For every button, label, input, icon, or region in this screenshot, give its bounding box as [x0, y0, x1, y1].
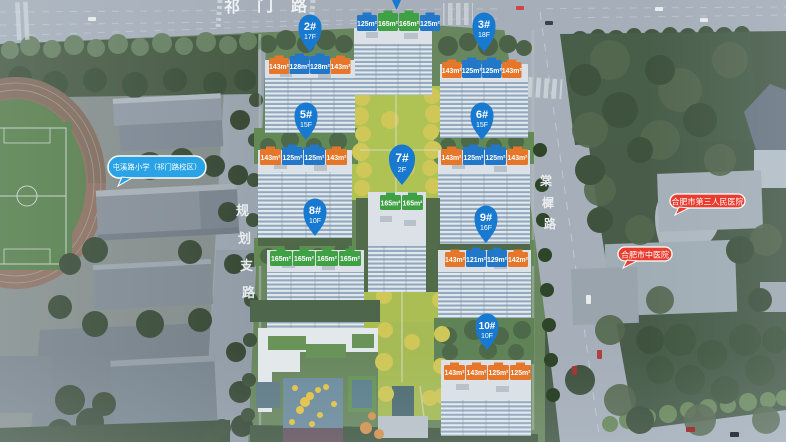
svg-text:2F: 2F: [398, 165, 407, 174]
svg-text:125m²: 125m²: [420, 21, 441, 28]
svg-text:祁: 祁: [224, 0, 240, 16]
svg-text:15F: 15F: [476, 122, 488, 129]
svg-text:165m²: 165m²: [271, 256, 292, 263]
svg-text:9#: 9#: [480, 212, 492, 224]
svg-text:165m²: 165m²: [317, 256, 338, 263]
svg-text:143m²: 143m²: [261, 155, 282, 162]
svg-text:合肥市第三人民医院: 合肥市第三人民医院: [672, 197, 744, 207]
svg-text:125m²: 125m²: [305, 155, 326, 162]
svg-text:143m²: 143m²: [442, 155, 463, 162]
svg-text:门: 门: [257, 0, 273, 15]
svg-text:17F: 17F: [304, 34, 316, 41]
svg-text:路: 路: [242, 285, 256, 300]
svg-text:125m²: 125m²: [511, 370, 532, 377]
svg-text:棠: 棠: [539, 173, 553, 188]
svg-text:8#: 8#: [309, 205, 321, 217]
svg-text:125m²: 125m²: [486, 155, 507, 162]
svg-text:15F: 15F: [300, 122, 312, 129]
svg-text:143m²: 143m²: [508, 155, 529, 162]
svg-text:16F: 16F: [480, 225, 492, 232]
svg-text:10F: 10F: [481, 333, 493, 340]
svg-text:121m²: 121m²: [466, 257, 487, 264]
svg-text:6#: 6#: [476, 109, 488, 121]
svg-text:165m²: 165m²: [378, 21, 399, 28]
svg-text:128m²: 128m²: [290, 64, 311, 71]
svg-text:143m²: 143m²: [327, 155, 348, 162]
svg-text:10F: 10F: [309, 218, 321, 225]
svg-text:143m²: 143m²: [442, 68, 463, 75]
svg-text:支: 支: [239, 258, 254, 273]
svg-text:125m²: 125m²: [357, 21, 378, 28]
svg-text:142m²: 142m²: [508, 257, 529, 264]
svg-text:10#: 10#: [479, 321, 496, 332]
svg-text:125m²: 125m²: [283, 155, 304, 162]
svg-text:165m²: 165m²: [399, 21, 420, 28]
svg-text:143m²: 143m²: [445, 257, 466, 264]
svg-text:125m²: 125m²: [482, 68, 503, 75]
svg-text:165m²: 165m²: [403, 201, 424, 208]
svg-text:143m²: 143m²: [445, 370, 466, 377]
svg-text:125m²: 125m²: [462, 68, 483, 75]
svg-text:143m²: 143m²: [269, 64, 290, 71]
svg-text:屯溪路小学（祁门路校区）: 屯溪路小学（祁门路校区）: [113, 163, 202, 172]
svg-text:143m²: 143m²: [467, 370, 488, 377]
svg-text:129m²: 129m²: [487, 257, 508, 264]
svg-text:125m²: 125m²: [489, 370, 510, 377]
svg-text:165m²: 165m²: [381, 201, 402, 208]
svg-text:165m²: 165m²: [340, 256, 361, 263]
svg-text:樨: 樨: [542, 195, 554, 210]
svg-text:18F: 18F: [478, 32, 490, 39]
svg-text:128m²: 128m²: [310, 64, 331, 71]
svg-text:路: 路: [291, 0, 308, 15]
svg-text:3#: 3#: [478, 19, 490, 31]
svg-text:2#: 2#: [304, 21, 316, 33]
svg-text:划: 划: [238, 231, 251, 246]
svg-text:165m²: 165m²: [294, 256, 315, 263]
svg-text:5#: 5#: [300, 109, 312, 121]
svg-text:规: 规: [236, 203, 249, 218]
svg-text:143m²: 143m²: [331, 64, 352, 71]
svg-text:路: 路: [544, 216, 557, 231]
svg-text:125m²: 125m²: [464, 155, 485, 162]
svg-text:143m²: 143m²: [502, 68, 523, 75]
svg-text:7#: 7#: [395, 151, 409, 165]
svg-text:合肥市中医院: 合肥市中医院: [621, 250, 669, 260]
